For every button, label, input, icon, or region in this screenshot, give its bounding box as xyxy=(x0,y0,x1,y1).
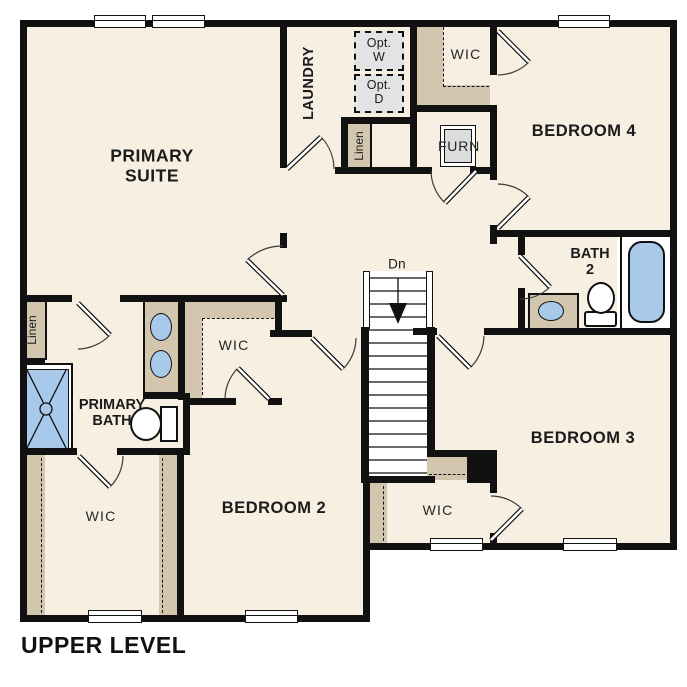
room-label-laundry: LAUNDRY xyxy=(301,46,317,120)
wall-segment xyxy=(184,398,236,405)
wall-segment xyxy=(120,295,287,302)
room-label-bedroom3: BEDROOM 3 xyxy=(483,429,683,447)
wall-segment xyxy=(20,295,72,302)
primary-sink-1 xyxy=(150,313,172,341)
wall-segment xyxy=(490,483,497,493)
stair-rail-right xyxy=(426,271,433,329)
window xyxy=(152,15,205,28)
wall-segment xyxy=(177,455,184,622)
bath2-toilet-bowl xyxy=(587,282,615,314)
wall-segment xyxy=(417,105,497,112)
bath2-sink xyxy=(538,301,564,321)
wall-segment xyxy=(410,27,417,124)
window xyxy=(94,15,146,28)
room-label-wic-top: WIC xyxy=(451,47,482,63)
tub-divider-line xyxy=(620,237,622,328)
wall-segment xyxy=(427,327,435,457)
wall-segment xyxy=(490,533,497,543)
wall-segment xyxy=(280,27,287,168)
room-label-bath2: BATH 2 xyxy=(565,246,615,278)
label-linen-laundry: Linen xyxy=(352,131,366,160)
label-opt-washer: Opt. W xyxy=(362,36,396,64)
wic-bl-rod-line-right xyxy=(162,458,163,613)
wall-segment xyxy=(20,358,45,365)
wic-top-shelf-bottom xyxy=(417,85,490,105)
label-furnace: FURN xyxy=(424,139,494,155)
wic-mid-shelf-top xyxy=(185,302,275,318)
wic-bl-rod-line-left xyxy=(41,458,42,613)
stairwell-floor xyxy=(365,271,431,478)
window xyxy=(563,538,617,551)
wic-br-rod-line xyxy=(383,486,384,541)
wall-segment xyxy=(20,615,370,622)
wall-segment xyxy=(484,328,677,335)
wall-segment xyxy=(361,476,435,483)
wall-segment xyxy=(490,27,497,75)
room-label-wic-bottom-left: WIC xyxy=(86,509,117,525)
wall-segment xyxy=(335,167,432,174)
room-label-primary-bath: PRIMARY BATH xyxy=(67,397,157,429)
window xyxy=(558,15,610,28)
wall-segment xyxy=(270,330,312,337)
shower xyxy=(20,363,73,455)
wall-segment xyxy=(518,288,525,328)
wall-segment xyxy=(183,393,190,455)
room-label-bedroom4: BEDROOM 4 xyxy=(484,122,684,140)
floor-lower-section xyxy=(20,550,370,622)
wall-segment xyxy=(670,20,677,550)
understair-void xyxy=(467,457,497,483)
primary-sink-2 xyxy=(150,350,172,378)
wall-segment xyxy=(280,233,287,248)
wall-segment xyxy=(490,230,677,237)
primary-toilet-tank xyxy=(160,406,178,442)
room-label-primary-suite: PRIMARY SUITE xyxy=(87,146,217,185)
window xyxy=(430,538,483,551)
label-opt-dryer: Opt. D xyxy=(362,78,396,106)
understair-rod-line xyxy=(429,474,465,475)
room-label-wic-bottom-right: WIC xyxy=(423,503,454,519)
label-stairs-dn: Dn xyxy=(388,256,406,271)
wall-segment xyxy=(341,124,348,167)
wall-segment xyxy=(427,450,497,457)
bathtub xyxy=(628,241,665,323)
floor-upper-section xyxy=(20,20,677,550)
floor-plan: PRIMARY SUITE LAUNDRY Opt. W Opt. D WIC … xyxy=(0,0,687,687)
window xyxy=(245,610,298,623)
wall-segment xyxy=(410,124,417,174)
wall-segment xyxy=(20,448,77,455)
wall-segment xyxy=(341,117,417,124)
stair-rail-left xyxy=(363,271,370,329)
wall-segment xyxy=(117,448,184,455)
wall-segment xyxy=(363,543,677,550)
wic-bl-shelf-left xyxy=(27,455,45,615)
wic-mid-rod-line xyxy=(202,318,274,395)
room-label-wic-mid: WIC xyxy=(219,338,250,354)
wall-segment xyxy=(518,237,525,255)
wall-segment xyxy=(361,327,369,483)
wic-mid-shelf-left xyxy=(185,318,202,398)
room-label-bedroom2: BEDROOM 2 xyxy=(174,499,374,517)
plan-title: UPPER LEVEL xyxy=(21,632,186,659)
wall-segment xyxy=(268,398,282,405)
wall-segment xyxy=(363,543,370,622)
window xyxy=(88,610,142,623)
wall-segment xyxy=(178,295,185,400)
label-linen-primary: Linen xyxy=(25,315,39,344)
